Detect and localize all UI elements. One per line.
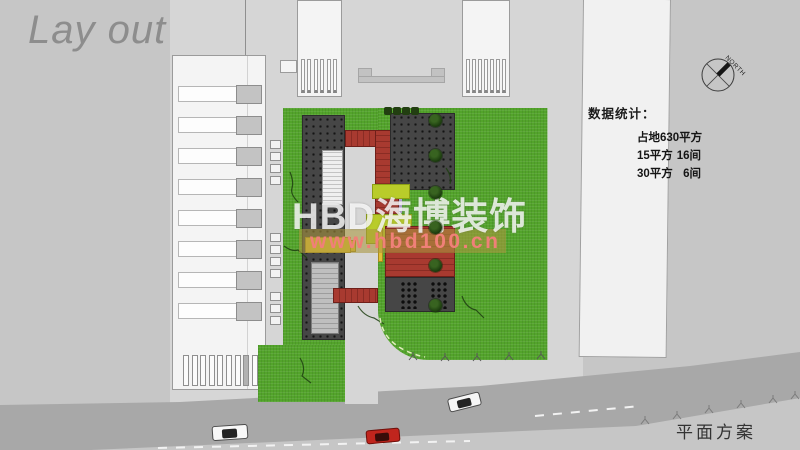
- top-building-left: [297, 0, 342, 97]
- parking-stall: [307, 59, 311, 93]
- red-roof-bridge-lower: [333, 288, 378, 303]
- stall-box: [270, 245, 281, 254]
- stall-column: [270, 0, 282, 450]
- stats-count: 16间: [677, 147, 701, 165]
- stall-box: [270, 269, 281, 278]
- parking-stall: [466, 59, 470, 93]
- room-core-block: [236, 271, 262, 290]
- car-red: [365, 428, 400, 445]
- stats-row: 15平方 16间: [637, 147, 701, 165]
- parking-stall: [327, 59, 331, 93]
- parking-stall: [472, 59, 476, 93]
- room-unit: [178, 210, 237, 226]
- stats-size: 30平方: [637, 165, 673, 183]
- stats-count: 6间: [683, 165, 701, 183]
- parking-stall: [243, 355, 249, 386]
- parking-stall: [252, 355, 258, 386]
- watermark-url: www.hbd100.cn: [310, 230, 500, 254]
- tree-symbol: [429, 149, 442, 162]
- room-core-block: [236, 116, 262, 135]
- entrance-tab: [280, 60, 297, 73]
- stall-box: [270, 140, 281, 149]
- left-building: [172, 55, 266, 390]
- stall-box: [270, 304, 281, 313]
- gate-structure: [358, 76, 445, 83]
- parking-stall: [192, 355, 198, 386]
- page-title: Lay out: [28, 8, 166, 53]
- tree-symbol: [429, 299, 442, 312]
- table-cluster: [400, 281, 418, 309]
- parking-stall: [200, 355, 206, 386]
- tree-symbol: [429, 221, 442, 234]
- room-unit: [178, 303, 237, 319]
- room-unit: [178, 117, 237, 133]
- stall-box: [270, 316, 281, 325]
- car-white: [212, 424, 249, 441]
- hedge-symbol: [411, 107, 419, 115]
- north-compass-icon: NORTH: [692, 45, 754, 107]
- parking-stall: [209, 355, 215, 386]
- stats-size: 15平方: [637, 147, 673, 165]
- parking-stall: [502, 59, 506, 93]
- room-unit: [178, 86, 237, 102]
- parking-stall: [226, 355, 232, 386]
- room-core-block: [236, 209, 262, 228]
- parking-stall: [490, 59, 494, 93]
- room-core-block: [236, 147, 262, 166]
- stall-box: [270, 176, 281, 185]
- parking-stall: [217, 355, 223, 386]
- parking-stall: [496, 59, 500, 93]
- room-unit: [178, 179, 237, 195]
- parking-row: [183, 355, 263, 388]
- wall-line: [245, 0, 246, 55]
- room-unit: [178, 272, 237, 288]
- parking-stall: [314, 59, 318, 93]
- courtyard: [345, 142, 378, 404]
- room-core-block: [236, 178, 262, 197]
- parking-stall: [235, 355, 241, 386]
- tree-symbol: [429, 259, 442, 272]
- hedge-symbol: [384, 107, 392, 115]
- stall-box: [270, 257, 281, 266]
- stats-row: 30平方 6间: [637, 165, 701, 183]
- hedge-symbol: [393, 107, 401, 115]
- tree-symbol: [429, 114, 442, 127]
- south-east-building: [385, 277, 455, 312]
- parking-stall: [183, 355, 189, 386]
- room-core-block: [236, 302, 262, 321]
- parking-stall: [478, 59, 482, 93]
- parking-stall: [333, 59, 337, 93]
- stall-box: [270, 152, 281, 161]
- stats-block: 数据统计： 占地630平方 15平方 16间 30平方 6间: [588, 103, 718, 183]
- parking-stall: [301, 59, 305, 93]
- plan-caption: 平面方案: [676, 418, 756, 443]
- stall-box: [270, 233, 281, 242]
- north-east-building: [390, 113, 455, 190]
- room-core-block: [236, 85, 262, 104]
- parking-stall: [320, 59, 324, 93]
- tree-symbol: [429, 186, 442, 199]
- site-plan-slide: HBD海博装饰 www.hbd100.cn Lay out 数据统计： 占地63…: [0, 0, 800, 450]
- stall-box: [270, 164, 281, 173]
- hedge-symbol: [402, 107, 410, 115]
- parking-stall: [484, 59, 488, 93]
- room-core-block: [236, 240, 262, 259]
- room-unit: [178, 241, 237, 257]
- top-building-right: [462, 0, 510, 97]
- stall-box: [270, 292, 281, 301]
- room-unit: [178, 148, 237, 164]
- stats-total: 占地630平方: [637, 129, 718, 147]
